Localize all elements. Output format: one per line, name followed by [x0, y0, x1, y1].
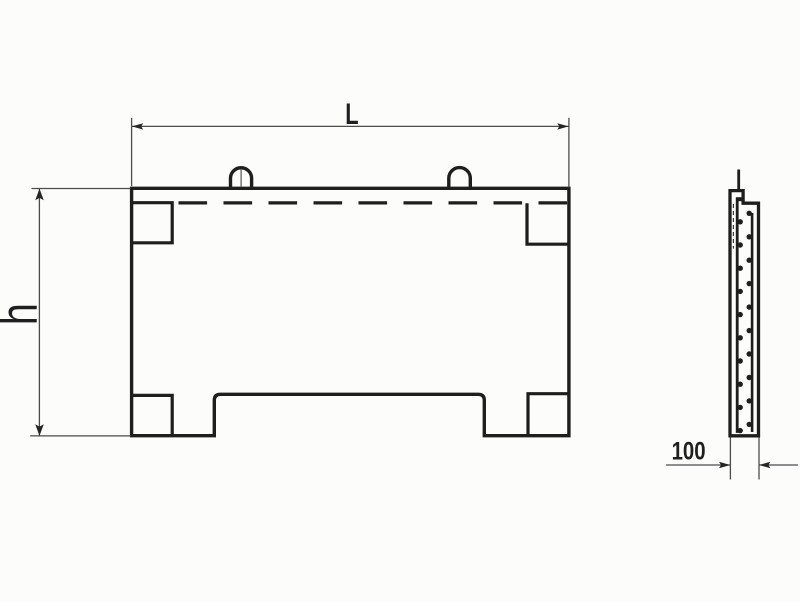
- svg-text:100: 100: [672, 437, 706, 465]
- svg-text:h: h: [0, 303, 48, 325]
- svg-text:L: L: [345, 99, 358, 131]
